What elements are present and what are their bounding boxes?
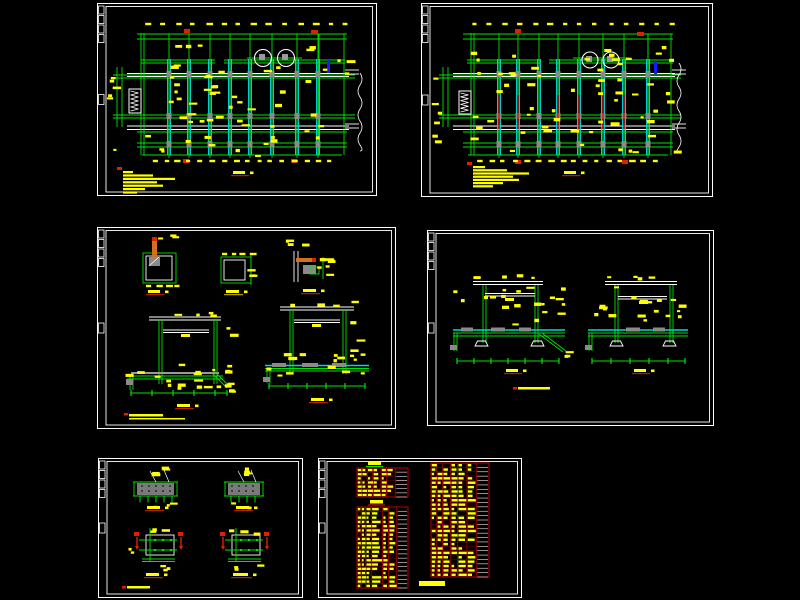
frame-binding-marks [99, 6, 105, 105]
sheet-details [99, 459, 303, 598]
sheet-sections-left [98, 228, 396, 429]
sheet-plan-right [422, 4, 713, 197]
frame-binding-marks [99, 230, 105, 333]
frame-binding-marks [320, 461, 326, 533]
frame-binding-marks [423, 6, 429, 105]
sheet-schedule-tables [319, 459, 522, 598]
sheet-plan-left [98, 4, 377, 196]
cad-canvas [0, 0, 800, 600]
frame-binding-marks [100, 461, 106, 533]
cad-drawing-workspace [0, 0, 800, 600]
frame-binding-marks [429, 233, 435, 333]
sheet-sections-right [428, 231, 714, 426]
